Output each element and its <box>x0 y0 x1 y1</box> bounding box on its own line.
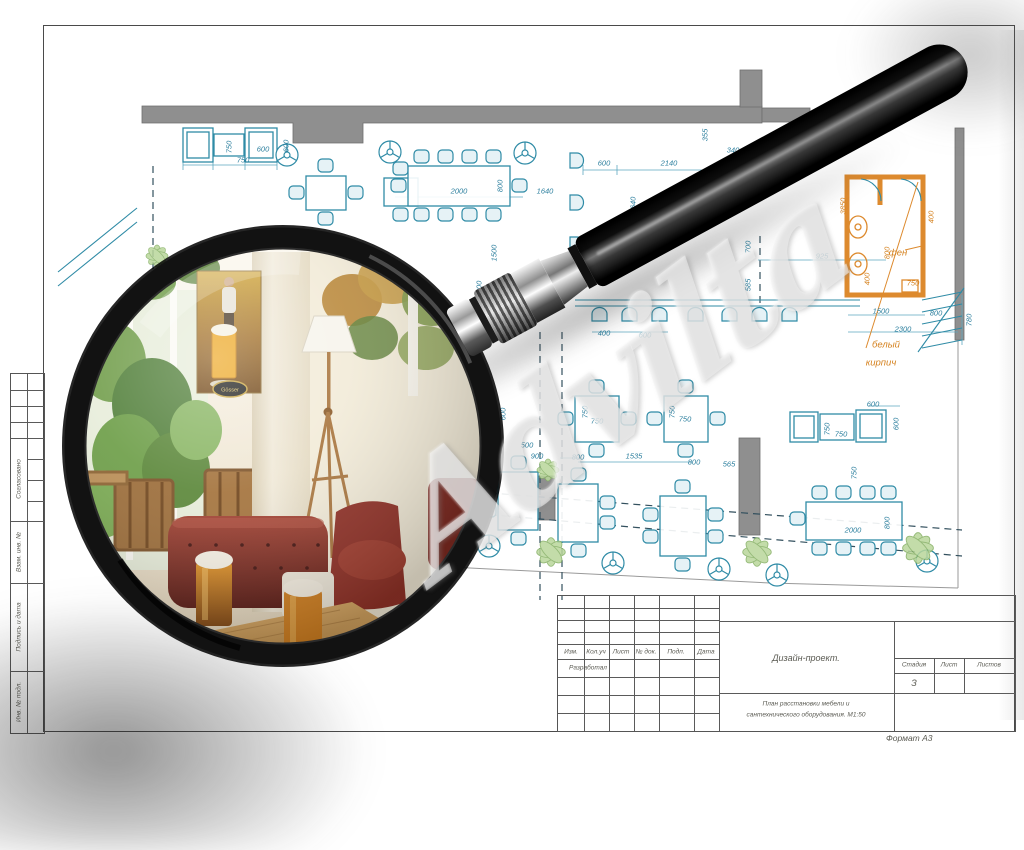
drawing-photo: { "watermark": "Advilta", "side_stamp": … <box>0 0 1024 763</box>
